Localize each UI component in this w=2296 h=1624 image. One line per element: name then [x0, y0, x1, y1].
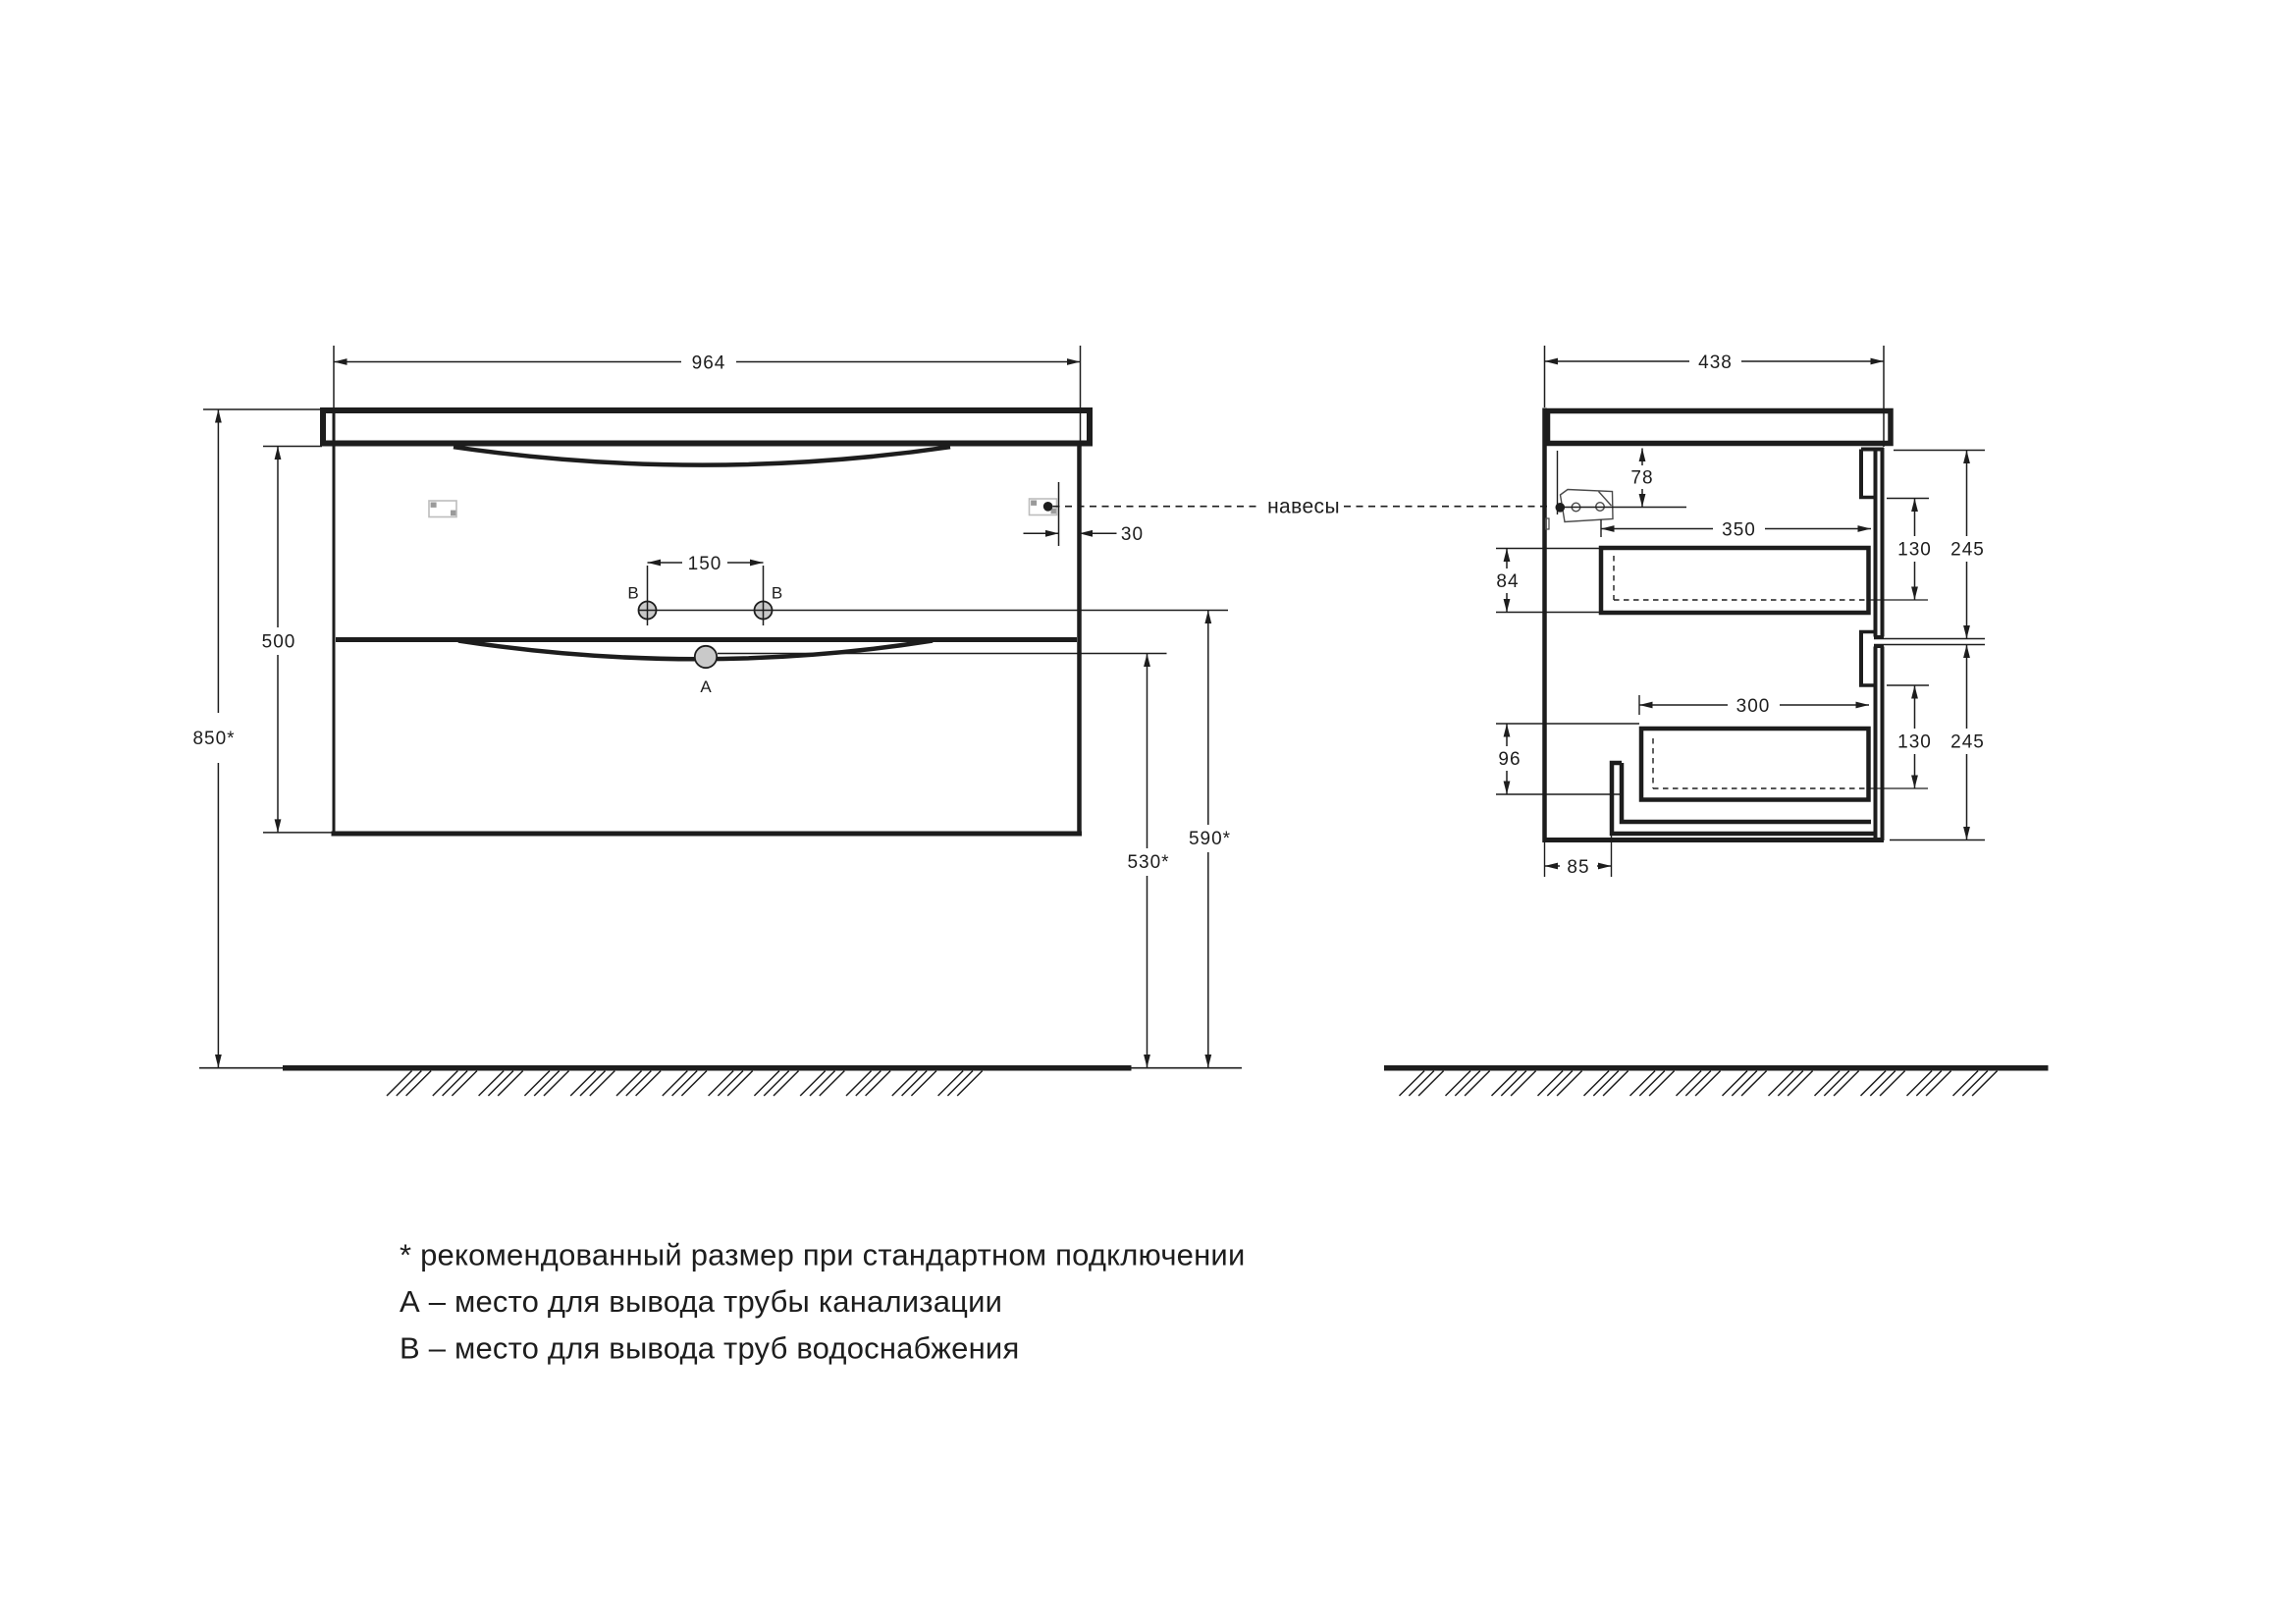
svg-text:84: 84 — [1496, 571, 1519, 592]
svg-text:96: 96 — [1498, 749, 1521, 770]
svg-text:150: 150 — [688, 554, 722, 574]
svg-text:В – место для вывода труб водо: В – место для вывода труб водоснабжения — [400, 1331, 1019, 1366]
svg-text:B: B — [627, 584, 638, 603]
svg-text:964: 964 — [692, 352, 726, 373]
svg-text:350: 350 — [1722, 519, 1756, 540]
svg-text:78: 78 — [1630, 468, 1653, 489]
svg-text:A: A — [700, 677, 712, 696]
svg-text:* рекомендованный размер при с: * рекомендованный размер при стандартном… — [400, 1238, 1245, 1272]
svg-text:245: 245 — [1950, 540, 1985, 561]
svg-text:130: 130 — [1897, 540, 1932, 561]
svg-text:245: 245 — [1950, 732, 1985, 753]
svg-text:130: 130 — [1897, 732, 1932, 753]
svg-text:B: B — [772, 584, 782, 603]
svg-text:300: 300 — [1736, 696, 1771, 717]
svg-text:590*: 590* — [1189, 829, 1231, 849]
svg-text:850*: 850* — [192, 729, 235, 749]
svg-text:30: 30 — [1121, 524, 1144, 545]
svg-text:навесы: навесы — [1267, 496, 1340, 518]
svg-text:А – место для вывода трубы кан: А – место для вывода трубы канализации — [400, 1284, 1002, 1319]
svg-text:530*: 530* — [1127, 852, 1169, 873]
svg-text:85: 85 — [1567, 857, 1589, 878]
svg-text:500: 500 — [262, 632, 296, 653]
svg-text:438: 438 — [1698, 352, 1733, 373]
